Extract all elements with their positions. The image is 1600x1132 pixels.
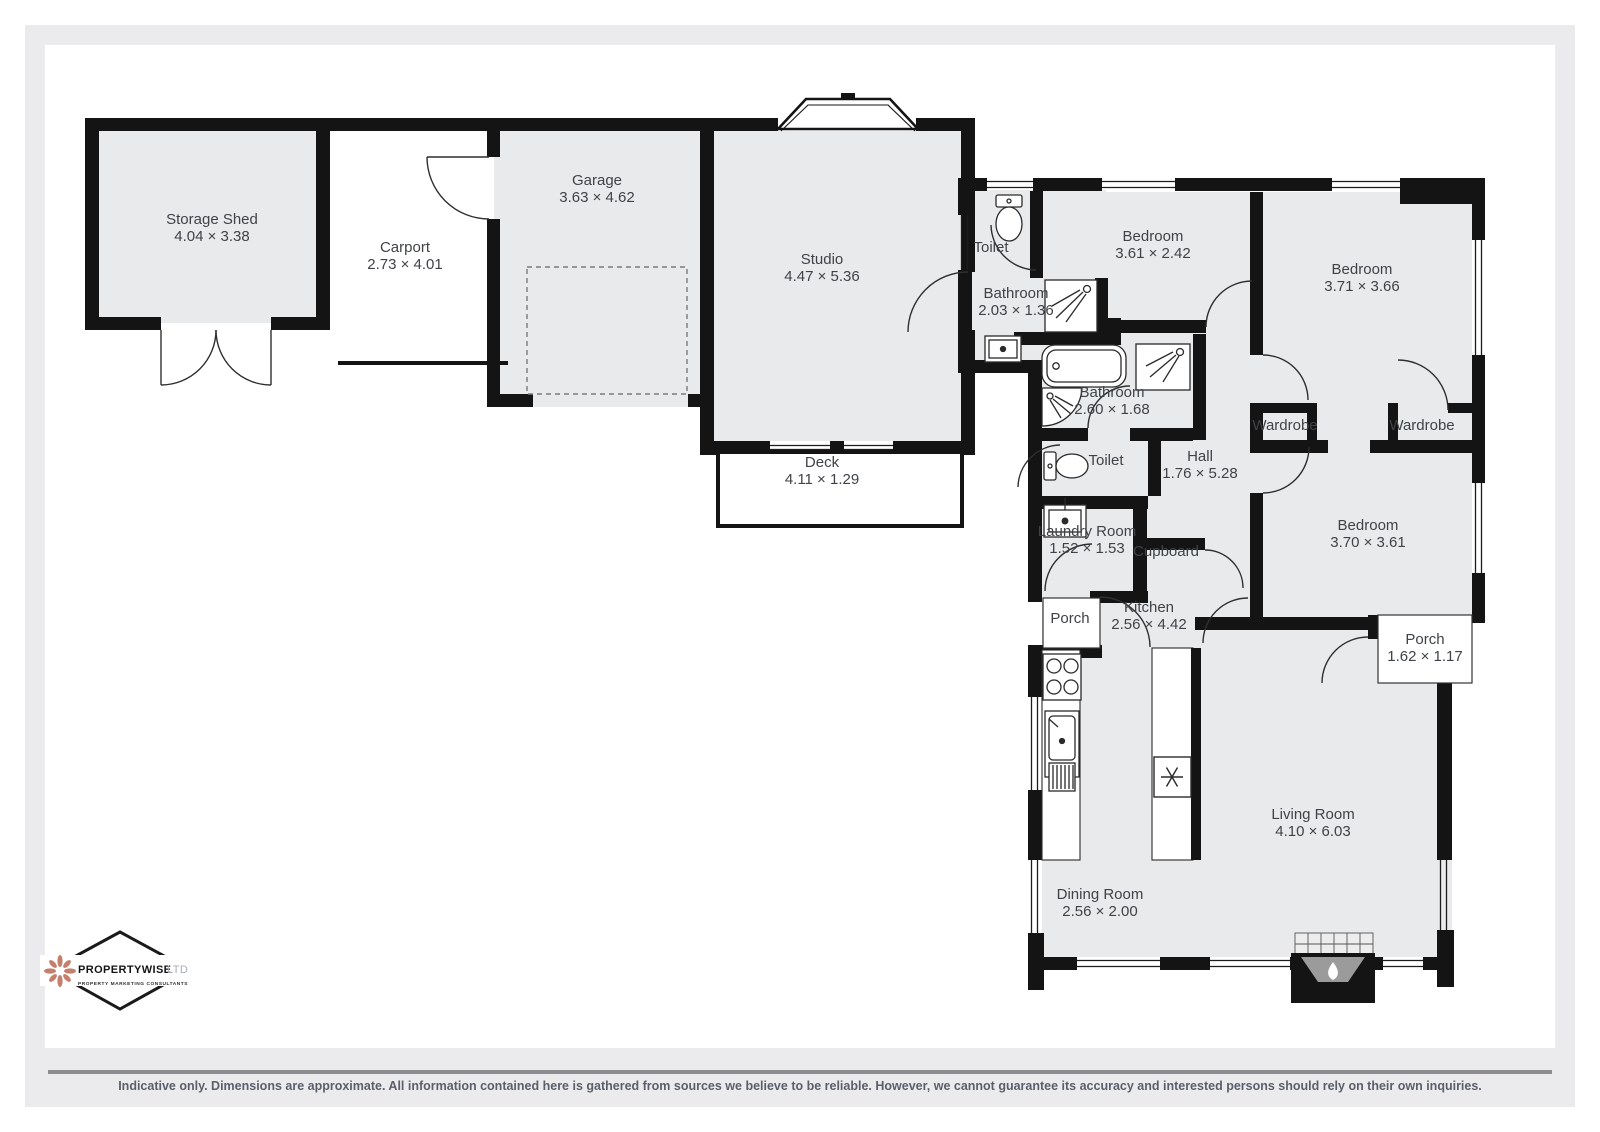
room-label-wardrobe-2: Wardrobe <box>1389 417 1454 434</box>
floorplan-page: Storage Shed4.04 × 3.38 Carport2.73 × 4.… <box>0 0 1600 1132</box>
room-label-toilet-1: Toilet <box>973 239 1008 256</box>
toilet-icon <box>1044 452 1088 480</box>
bay-window <box>778 99 918 131</box>
logo-name: PROPERTYWISE <box>78 964 171 976</box>
room-label-deck: Deck4.11 × 1.29 <box>785 454 859 488</box>
room-label-bathroom-1: Bathroom2.03 × 1.36 <box>978 285 1053 319</box>
room-label-garage: Garage3.63 × 4.62 <box>559 172 634 206</box>
room-label-hall: Hall1.76 × 5.28 <box>1162 448 1237 482</box>
room-label-carport: Carport2.73 × 4.01 <box>367 239 442 273</box>
footer-divider <box>48 1070 1552 1074</box>
stove-icon <box>1043 654 1081 700</box>
logo-suffix: LTD <box>167 964 188 976</box>
room-label-wardrobe-1: Wardrobe <box>1252 417 1317 434</box>
company-logo: PROPERTYWISE LTD PROPERTY MARKETING CONS… <box>40 926 210 1018</box>
room-label-bedroom-2: Bedroom3.71 × 3.66 <box>1324 261 1399 295</box>
floorplan-drawing <box>0 0 1600 1132</box>
bathtub-icon <box>1042 345 1126 387</box>
footer-disclaimer: Indicative only. Dimensions are approxim… <box>118 1079 1482 1093</box>
room-floors <box>92 125 1472 957</box>
logo-tagline: PROPERTY MARKETING CONSULTANTS <box>78 981 188 987</box>
room-label-dining-room: Dining Room2.56 × 2.00 <box>1057 886 1144 920</box>
fireplace-icon <box>1291 933 1375 1003</box>
room-label-kitchen: Kitchen2.56 × 4.42 <box>1111 599 1186 633</box>
room-label-laundry-room: Laundry Room1.52 × 1.53 <box>1038 523 1136 557</box>
room-label-toilet-2: Toilet <box>1088 452 1123 469</box>
room-label-living-room: Living Room4.10 × 6.03 <box>1271 806 1354 840</box>
kitchen-island <box>1152 648 1201 860</box>
room-label-porch-2: Porch1.62 × 1.17 <box>1387 631 1462 665</box>
room-label-cupboard: Cupboard <box>1133 543 1199 560</box>
room-label-studio: Studio4.47 × 5.36 <box>784 251 859 285</box>
fridge-icon <box>1154 757 1191 797</box>
room-label-bedroom-3: Bedroom3.70 × 3.61 <box>1330 517 1405 551</box>
sink-icon <box>985 336 1021 362</box>
sink-icon <box>1045 711 1079 791</box>
room-label-bathroom-2: Bathroom2.60 × 1.68 <box>1074 384 1149 418</box>
room-label-storage-shed: Storage Shed4.04 × 3.38 <box>166 211 258 245</box>
toilet-icon <box>996 195 1022 241</box>
room-label-bedroom-1: Bedroom3.61 × 2.42 <box>1115 228 1190 262</box>
room-label-porch-1: Porch <box>1050 610 1089 627</box>
